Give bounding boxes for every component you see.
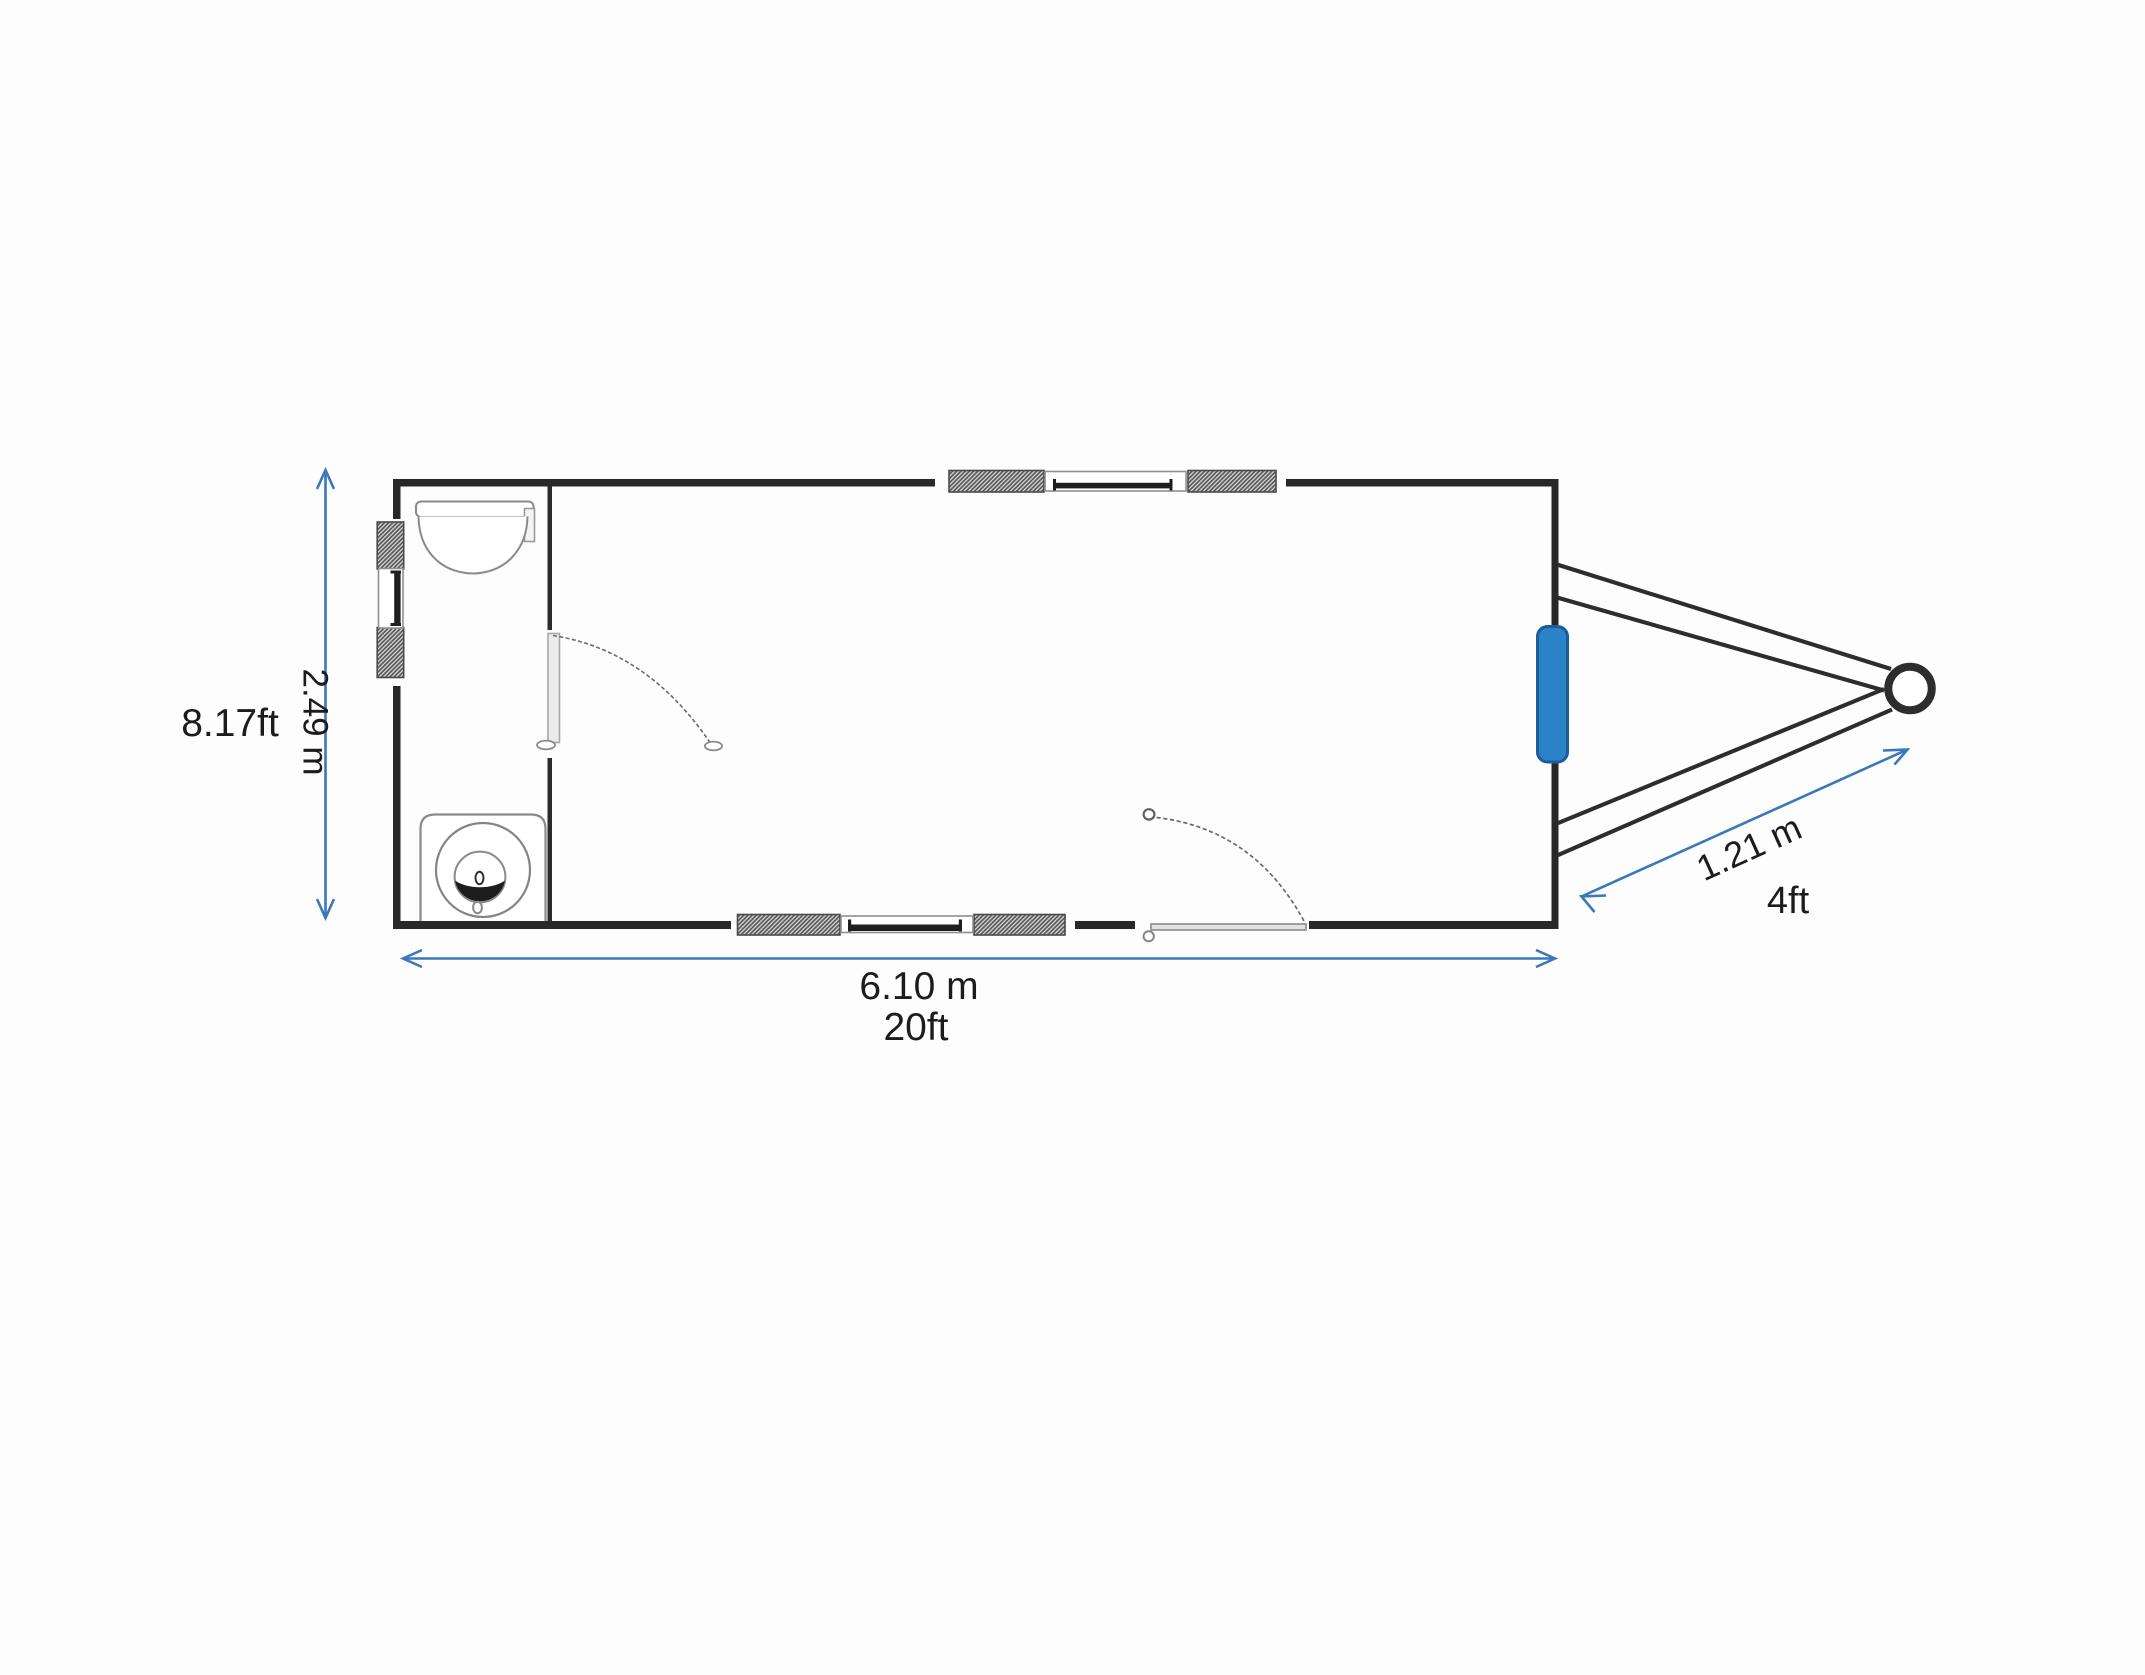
- svg-text:4ft: 4ft: [1767, 880, 1810, 922]
- svg-text:20ft: 20ft: [883, 1006, 948, 1049]
- svg-text:6.10 m: 6.10 m: [859, 965, 978, 1008]
- svg-text:2.49 m: 2.49 m: [296, 669, 335, 776]
- svg-text:8.17ft: 8.17ft: [181, 702, 279, 745]
